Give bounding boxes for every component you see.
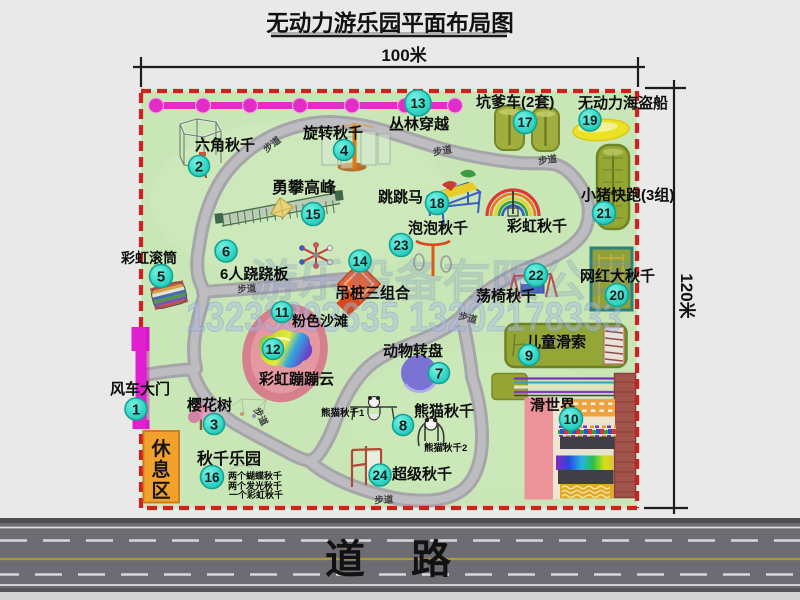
svg-text:17: 17 — [517, 115, 532, 130]
svg-text:22: 22 — [528, 268, 543, 283]
svg-text:6人跷跷板: 6人跷跷板 — [220, 265, 289, 283]
svg-text:一个彩虹秋千: 一个彩虹秋千 — [229, 489, 283, 500]
svg-text:风车大门: 风车大门 — [110, 380, 170, 398]
svg-text:1: 1 — [132, 401, 140, 418]
svg-text:120米: 120米 — [677, 273, 697, 319]
svg-text:12: 12 — [265, 342, 280, 357]
svg-text:泡泡秋千: 泡泡秋千 — [408, 219, 468, 237]
svg-text:2: 2 — [195, 158, 203, 175]
svg-text:吊桩三组合: 吊桩三组合 — [335, 284, 411, 302]
svg-text:跳跳马: 跳跳马 — [378, 188, 423, 206]
svg-text:100米: 100米 — [381, 45, 427, 65]
svg-text:丛林穿越: 丛林穿越 — [389, 115, 450, 133]
svg-text:旋转秋千: 旋转秋千 — [302, 124, 363, 142]
svg-text:彩虹秋千: 彩虹秋千 — [506, 217, 567, 235]
svg-text:熊猫秋千1: 熊猫秋千1 — [321, 407, 365, 419]
svg-text:23: 23 — [393, 238, 409, 253]
svg-text:荡椅秋千: 荡椅秋千 — [476, 287, 536, 305]
svg-text:10: 10 — [563, 412, 578, 427]
svg-text:3: 3 — [210, 416, 218, 433]
svg-text:9: 9 — [525, 347, 533, 364]
svg-text:六角秋千: 六角秋千 — [195, 136, 255, 154]
svg-text:小猪快跑(3组): 小猪快跑(3组) — [581, 186, 674, 204]
svg-text:勇攀高峰: 勇攀高峰 — [272, 178, 337, 197]
svg-text:彩虹蹦蹦云: 彩虹蹦蹦云 — [258, 370, 334, 388]
svg-text:6: 6 — [222, 243, 230, 260]
svg-text:8: 8 — [399, 417, 407, 434]
svg-text:彩虹滚筒: 彩虹滚筒 — [120, 250, 177, 266]
svg-text:网红大秋千: 网红大秋千 — [580, 267, 655, 285]
svg-text:两个蝴蝶秋千: 两个蝴蝶秋千 — [228, 470, 282, 481]
svg-text:20: 20 — [609, 288, 624, 303]
svg-text:13: 13 — [410, 96, 426, 111]
svg-text:超级秋千: 超级秋千 — [391, 465, 452, 483]
svg-text:19: 19 — [582, 113, 597, 128]
svg-text:樱花树: 樱花树 — [187, 396, 232, 414]
svg-text:15: 15 — [305, 207, 321, 222]
svg-text:秋千乐园: 秋千乐园 — [197, 449, 261, 468]
svg-text:区: 区 — [151, 481, 170, 502]
svg-text:18: 18 — [429, 196, 445, 211]
svg-text:无动力游乐园平面布局图: 无动力游乐园平面布局图 — [266, 10, 514, 36]
svg-text:坑爹车(2套): 坑爹车(2套) — [476, 93, 554, 111]
svg-text:5: 5 — [157, 268, 165, 285]
svg-text:16: 16 — [204, 470, 220, 485]
svg-text:休: 休 — [150, 438, 171, 460]
svg-text:动物转盘: 动物转盘 — [383, 342, 443, 360]
svg-text:息: 息 — [151, 458, 170, 481]
svg-text:熊猫秋千2: 熊猫秋千2 — [424, 442, 467, 454]
svg-text:24: 24 — [372, 468, 388, 483]
svg-text:步道: 步道 — [374, 493, 394, 506]
svg-text:步道: 步道 — [237, 282, 257, 295]
svg-text:14: 14 — [352, 254, 368, 269]
svg-text:7: 7 — [435, 365, 443, 382]
svg-text:4: 4 — [340, 142, 349, 159]
svg-text:11: 11 — [275, 305, 290, 320]
svg-text:粉色沙滩: 粉色沙滩 — [292, 313, 348, 329]
svg-text:路: 路 — [411, 538, 452, 582]
svg-text:21: 21 — [596, 206, 612, 221]
svg-text:熊猫秋千: 熊猫秋千 — [414, 402, 474, 420]
svg-text:道: 道 — [325, 538, 365, 582]
